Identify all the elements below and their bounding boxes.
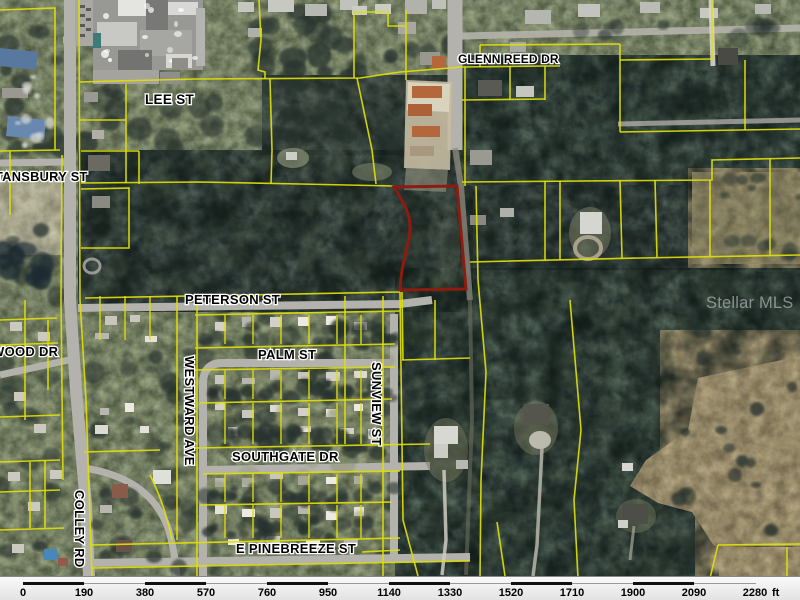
svg-text:GLENN REED DR: GLENN REED DR xyxy=(458,52,559,66)
svg-text:E PINEBREEZE ST: E PINEBREEZE ST xyxy=(236,541,356,556)
svg-text:SOUTHGATE DR: SOUTHGATE DR xyxy=(232,449,339,464)
svg-text:WOOD DR: WOOD DR xyxy=(0,344,59,359)
svg-text:WESTWARD AVE: WESTWARD AVE xyxy=(182,356,197,466)
svg-text:TANSBURY ST: TANSBURY ST xyxy=(0,169,88,184)
svg-text:PALM ST: PALM ST xyxy=(258,347,316,362)
svg-text:PETERSON ST: PETERSON ST xyxy=(185,292,280,307)
svg-text:COLLEY RD: COLLEY RD xyxy=(72,490,87,568)
svg-text:LEE ST: LEE ST xyxy=(145,92,195,107)
svg-text:Stellar MLS: Stellar MLS xyxy=(706,294,793,312)
svg-text:SUNVIEW ST: SUNVIEW ST xyxy=(369,362,384,446)
